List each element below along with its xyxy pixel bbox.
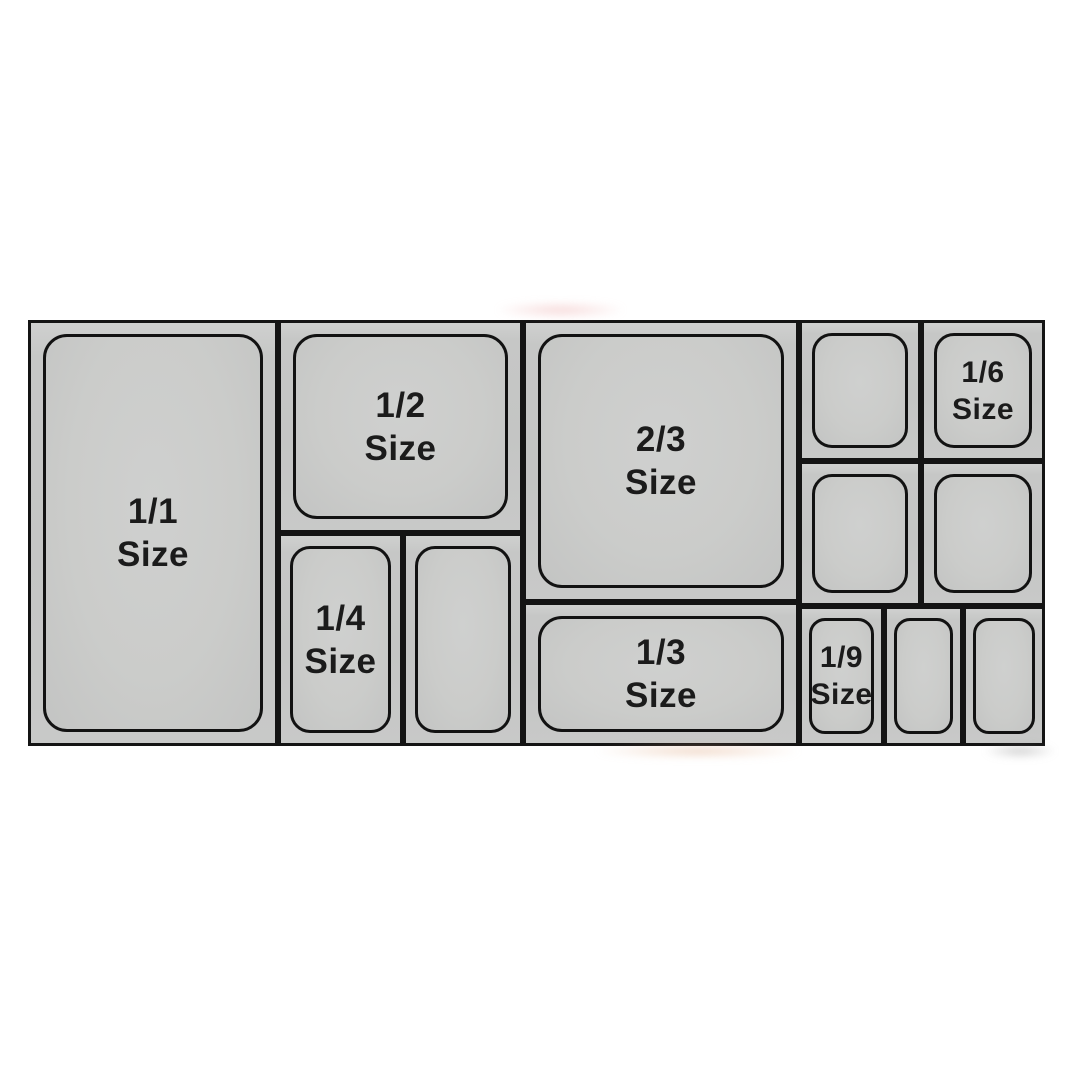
pan-word: Size	[364, 427, 436, 470]
pan-outline-1-2: 1/2 Size	[293, 334, 508, 519]
pan-fraction: 1/6	[961, 354, 1004, 391]
pan-cell-1-9: 1/9 Size	[799, 606, 884, 746]
pan-outline-1-9: 1/9 Size	[809, 618, 874, 734]
pan-outline-1-1: 1/1 Size	[43, 334, 263, 732]
pan-cell-1-1: 1/1 Size	[28, 320, 278, 746]
pan-word: Size	[117, 533, 189, 576]
pan-outline-1-3: 1/3 Size	[538, 616, 784, 732]
pan-fraction: 1/1	[128, 490, 178, 533]
pan-outline-1-9-unlabeled	[894, 618, 953, 734]
pan-cell-1-6: 1/6 Size	[921, 320, 1045, 461]
pan-cell-1-9-unlabeled-2	[963, 606, 1045, 746]
pan-cell-1-6-unlabeled-2	[799, 461, 921, 606]
corner-shadow-artifact	[985, 744, 1055, 758]
pan-outline-1-4-unlabeled	[415, 546, 511, 733]
pan-size-label: 1/3 Size	[625, 631, 697, 717]
pan-cell-1-9-unlabeled	[884, 606, 963, 746]
pan-fraction: 1/3	[636, 631, 686, 674]
pan-cell-1-2: 1/2 Size	[278, 320, 523, 533]
pan-size-label: 1/6 Size	[952, 354, 1014, 428]
pan-size-label: 1/2 Size	[364, 384, 436, 470]
pan-outline-1-4: 1/4 Size	[290, 546, 391, 733]
watermark-artifact-top	[498, 302, 623, 318]
pan-cell-1-6-unlabeled-3	[921, 461, 1045, 606]
pan-fraction: 1/4	[315, 597, 365, 640]
pan-cell-1-4-unlabeled	[403, 533, 523, 746]
pan-cell-1-6-unlabeled	[799, 320, 921, 461]
pan-fraction: 2/3	[636, 418, 686, 461]
pan-size-label: 1/4 Size	[304, 597, 376, 683]
pan-cell-1-4: 1/4 Size	[278, 533, 403, 746]
product-image: 1/1 Size 1/2 Size 1/4 Size	[0, 0, 1080, 1080]
pan-word: Size	[304, 640, 376, 683]
pan-size-label: 1/1 Size	[117, 490, 189, 576]
pan-outline-1-6-unlabeled	[812, 333, 908, 448]
pan-size-label: 1/9 Size	[810, 639, 872, 713]
pan-size-label: 2/3 Size	[625, 418, 697, 504]
pan-outline-1-6-unlabeled-3	[934, 474, 1032, 593]
pan-outline-1-9-unlabeled-2	[973, 618, 1035, 734]
pan-cell-2-3: 2/3 Size	[523, 320, 799, 602]
pan-size-chart: 1/1 Size 1/2 Size 1/4 Size	[28, 320, 1045, 746]
pan-fraction: 1/2	[375, 384, 425, 427]
pan-outline-1-6: 1/6 Size	[934, 333, 1032, 448]
pan-word: Size	[952, 391, 1014, 428]
pan-cell-1-3: 1/3 Size	[523, 602, 799, 746]
pan-word: Size	[625, 461, 697, 504]
pan-outline-2-3: 2/3 Size	[538, 334, 784, 588]
watermark-artifact-bottom	[598, 744, 798, 758]
pan-fraction: 1/9	[820, 639, 863, 676]
pan-outline-1-6-unlabeled-2	[812, 474, 908, 593]
pan-word: Size	[625, 674, 697, 717]
pan-word: Size	[810, 676, 872, 713]
